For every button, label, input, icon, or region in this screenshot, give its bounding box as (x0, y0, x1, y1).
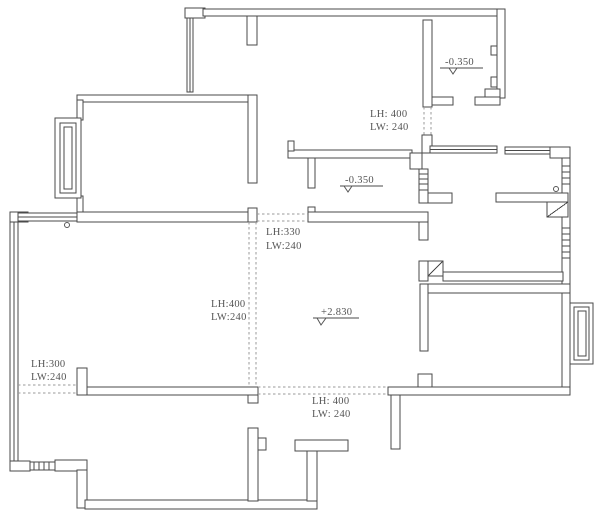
opening-label-left-lower: LH:300 LW:240 (31, 359, 67, 383)
opening-left-mid-lw: LW:240 (211, 312, 247, 323)
floor-plan: -0.350 -0.350 +2.830 LH: 400 LW: 240 LH:… (0, 0, 600, 522)
opening-label-hall: LH:330 LW:240 (266, 227, 302, 252)
opening-left-mid-lh: LH:400 (211, 299, 245, 310)
walls-top (185, 8, 503, 92)
walls-bottom-middle (65, 223, 349, 502)
opening-upper-right-lw: LW: 240 (370, 122, 409, 133)
room-right-middle (430, 146, 570, 395)
room-upper-right (422, 9, 505, 153)
opening-hall-lh: LH:330 (266, 227, 300, 238)
room-upper-left (10, 95, 257, 222)
floor-plan-drawing: -0.350 -0.350 +2.830 LH: 400 LW: 240 LH:… (0, 0, 600, 522)
hallway-walls (288, 141, 452, 281)
elevation-label-upper-right: -0.350 (445, 57, 474, 68)
elevation-marker-upper-right (440, 68, 483, 74)
opening-left-lower-lw: LW:240 (31, 372, 67, 383)
window-bay-right (570, 303, 593, 364)
opening-bottom-lw: LW: 240 (312, 409, 351, 420)
window-bay-left (55, 118, 81, 198)
opening-upper-right-lh: LH: 400 (370, 109, 407, 120)
elevation-marker-living (313, 318, 359, 325)
opening-bottom-lh: LH: 400 (312, 396, 349, 407)
corner-cabinet-icon (547, 202, 568, 217)
elevation-label-hallway: -0.350 (345, 175, 374, 186)
room-bottom-right (388, 284, 570, 449)
opening-label-left-mid: LH:400 LW:240 (211, 299, 247, 323)
opening-label-bottom: LH: 400 LW: 240 (312, 396, 351, 420)
opening-hall-lw: LW:240 (266, 241, 302, 252)
opening-left-lower-lh: LH:300 (31, 359, 65, 370)
door-swing-icon (428, 261, 443, 276)
elevation-marker-hallway (340, 186, 383, 192)
opening-label-upper-right: LH: 400 LW: 240 (370, 109, 409, 133)
elevation-label-living: +2.830 (321, 307, 352, 318)
